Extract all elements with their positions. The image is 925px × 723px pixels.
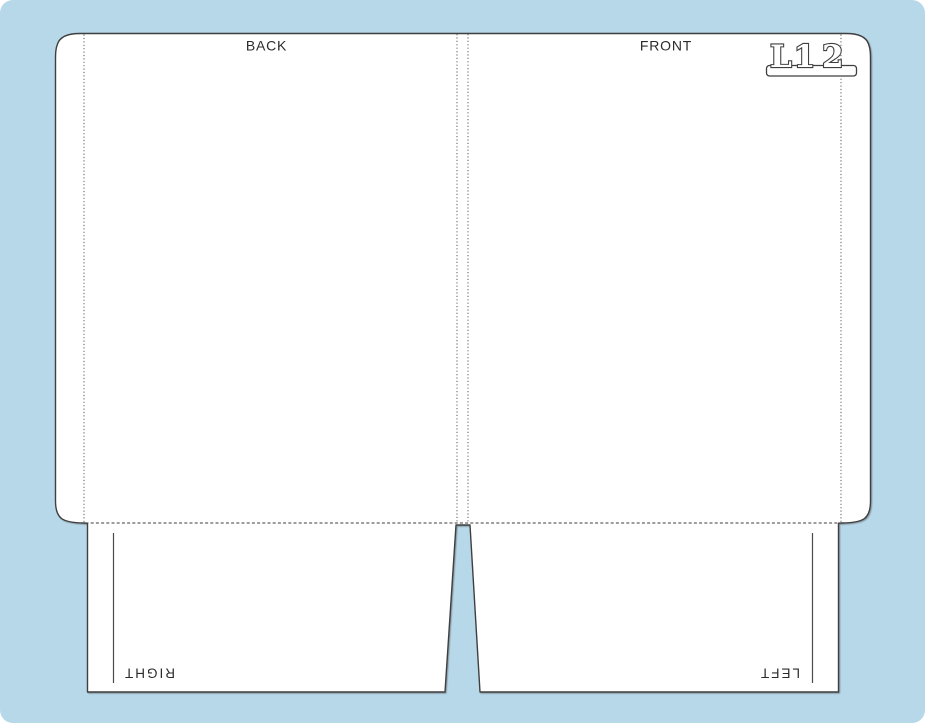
right-pocket-label: RIGHT bbox=[123, 666, 175, 681]
back-panel-label: BACK bbox=[246, 38, 287, 54]
left-pocket-label: LEFT bbox=[759, 666, 800, 681]
pocket-folder-dieline: BACK FRONT RIGHT LEFT L1 2 bbox=[0, 0, 925, 723]
mark-text-l1: L1 bbox=[770, 39, 817, 75]
front-panel-label: FRONT bbox=[640, 38, 692, 54]
folder-cut-outline bbox=[56, 34, 871, 693]
dieline-reference-mark: L1 2 bbox=[767, 39, 857, 76]
mark-text-2: 2 bbox=[822, 39, 846, 75]
dieline-canvas: BACK FRONT RIGHT LEFT L1 2 bbox=[0, 0, 925, 723]
